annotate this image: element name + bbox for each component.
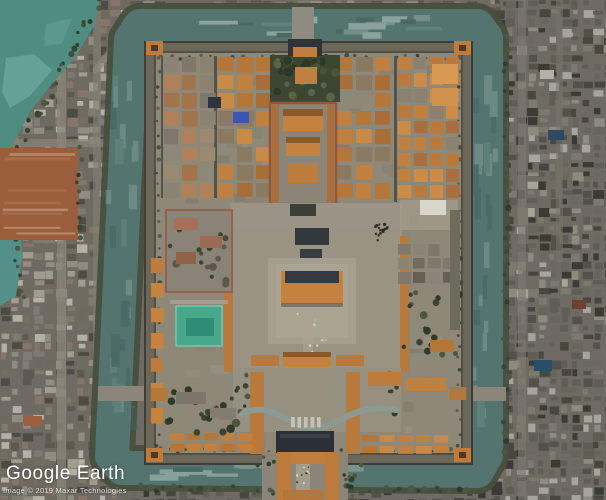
- corner-tower-sw-cap: [151, 452, 158, 458]
- cining-hall-2: [200, 236, 222, 248]
- sw-hall-2: [210, 408, 236, 418]
- city-blue-roof-2: [534, 360, 552, 371]
- wumen-wing-east: [325, 452, 339, 500]
- east-hall-1: [368, 372, 402, 386]
- taihemen-gate-ridge: [283, 352, 331, 357]
- dark-panel-roof: [208, 97, 221, 108]
- city-white-roof-1: [540, 70, 554, 79]
- duanmen-roof: [283, 490, 323, 500]
- clay-courts: [0, 148, 78, 240]
- street-east-vertical-1: [518, 0, 526, 500]
- east-wall-halls: [450, 210, 460, 330]
- blue-tarp: [233, 112, 249, 123]
- ne-bright-hall-2: [432, 88, 458, 106]
- cining-hall-1: [174, 218, 198, 230]
- inner-court-gallery-west: [272, 105, 279, 202]
- google-earth-viewport[interactable]: Google Earth Image © 2019 Maxar Technolo…: [0, 0, 606, 500]
- wumen-hall-ridge: [280, 434, 330, 438]
- inner-court-gallery-east: [327, 105, 334, 202]
- city-red-roof-1: [24, 416, 42, 426]
- copyright-attribution: Image © 2019 Maxar Technologies: [3, 486, 127, 495]
- xihuamen-roof: [151, 388, 168, 401]
- baohe-hall: [295, 228, 329, 245]
- qianqing-hall-ridge: [283, 109, 323, 116]
- ne-bright-hall-1: [432, 64, 458, 84]
- cining-hall-3: [176, 252, 196, 264]
- corner-tower-nw-cap: [151, 45, 158, 51]
- alley-east-2: [394, 56, 397, 202]
- kunning-hall: [288, 163, 318, 183]
- alley-west-1: [161, 56, 163, 198]
- corner-tower-ne-cap: [459, 45, 466, 51]
- greenhouse-pool: [186, 318, 214, 336]
- satellite-scene[interactable]: [0, 0, 606, 500]
- gallery-east: [400, 236, 409, 372]
- alley-west-2: [214, 56, 217, 198]
- east-hall-2: [406, 378, 446, 391]
- city-blue-roof-1: [548, 130, 564, 140]
- donghuamen-roof: [449, 387, 466, 400]
- city-red-roof-2: [572, 300, 586, 309]
- qianqingmen-gate: [290, 204, 316, 216]
- white-tent: [420, 200, 446, 215]
- greenhouse-surround: [170, 300, 228, 304]
- taihe-hall-ridge: [285, 271, 339, 283]
- google-earth-logo: Google Earth: [6, 463, 125, 485]
- sw-hall-1: [176, 392, 206, 404]
- garden-pavilion: [295, 67, 317, 84]
- taihemen-flank-east: [336, 355, 364, 366]
- corner-tower-se-cap: [459, 452, 466, 458]
- east-hall-3: [430, 340, 454, 352]
- taihe-hall-shadow: [281, 303, 343, 307]
- jiaotai-hall-ridge: [286, 137, 320, 143]
- west-gate-bridge: [98, 386, 152, 401]
- shenwumen-roof: [293, 47, 317, 57]
- taihemen-flank-west: [251, 355, 279, 366]
